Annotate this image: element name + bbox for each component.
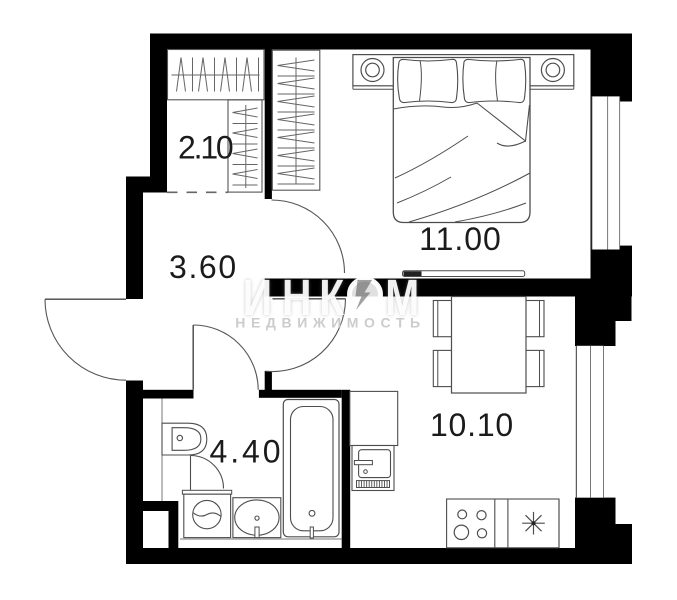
svg-text:11.00: 11.00	[419, 221, 502, 257]
svg-text:2.10: 2.10	[178, 129, 233, 165]
svg-text:НЕДВИЖИМОСТЬ: НЕДВИЖИМОСТЬ	[235, 314, 425, 330]
svg-text:3.60: 3.60	[169, 249, 238, 285]
svg-text:10.10: 10.10	[430, 407, 514, 443]
svg-text:4.40: 4.40	[210, 434, 284, 470]
